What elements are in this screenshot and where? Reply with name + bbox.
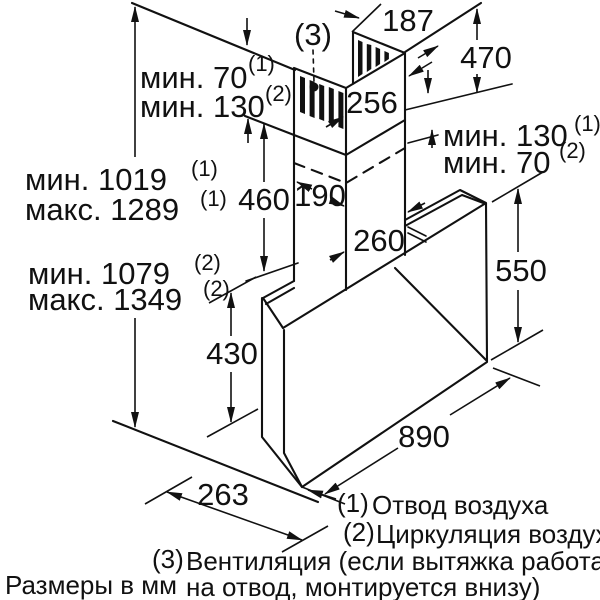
duct-bracket-detail	[408, 227, 426, 242]
annotation-overall-heights: мин. 1019 (1) макс. 1289 (1) мин. 1079 (…	[25, 156, 230, 317]
vent-slat	[358, 40, 363, 77]
vent-slat	[338, 91, 343, 129]
vent-slat	[376, 47, 381, 67]
annotation-text: мин. 70	[443, 145, 550, 180]
dim-label-460: 460	[238, 182, 290, 217]
dimension-arrow	[418, 46, 438, 58]
dimension-right-clearance	[428, 70, 432, 148]
right-reference-line-upper	[405, 84, 512, 110]
diagram-canvas: 187 470 256 190 260 460 550 430 263 890 …	[0, 0, 600, 600]
annotation-sup: (1)	[574, 111, 600, 136]
annotation-ceiling-clearance: мин. 70 (1) мин. 130 (2)	[140, 51, 292, 124]
installation-diagram: 187 470 256 190 260 460 550 430 263 890 …	[0, 0, 600, 600]
dim-label-187: 187	[382, 3, 434, 38]
dimension-arrow	[335, 11, 359, 18]
callout-3-leader	[310, 50, 319, 92]
annotation-sup: (2)	[559, 138, 586, 163]
vent-slat	[384, 51, 389, 62]
units-note: Размеры в мм	[5, 570, 177, 600]
annotation-sup: (2)	[203, 276, 230, 301]
callout-3-label: (3)	[294, 17, 332, 52]
dim-label-430: 430	[206, 336, 258, 371]
dim-label-470: 470	[460, 40, 512, 75]
dim-label-256: 256	[346, 85, 398, 120]
right-reference-line-lower	[408, 135, 438, 143]
annotation-sup: (1)	[200, 186, 227, 211]
dim-label-263: 263	[197, 477, 249, 512]
legend: (1) Отвод воздуха (2) Циркуляция воздуха…	[5, 488, 600, 600]
dim-label-190: 190	[294, 178, 346, 213]
dimension-arrow	[330, 252, 344, 260]
dim-label-890: 890	[398, 419, 450, 454]
annotation-text: мин. 130	[140, 89, 265, 124]
annotation-text: макс. 1289	[25, 192, 179, 227]
annotation-right-clearance: мин. 130 (1) мин. 70 (2)	[443, 111, 600, 180]
callout-3-dot	[310, 83, 319, 92]
callout-3-dashed-line	[313, 50, 314, 82]
hood-inner-edge	[395, 268, 486, 360]
legend-leader-arrow	[308, 490, 336, 499]
legend-item-1-text: Отвод воздуха	[372, 490, 549, 520]
vent-slat	[329, 87, 334, 125]
legend-item-3-text-line2: на отвод, монтируется внизу)	[186, 572, 540, 600]
annotation-text: макс. 1349	[28, 282, 182, 317]
dim-label-550: 550	[495, 253, 547, 288]
vent-slat	[367, 44, 372, 72]
chimney-joint-line	[245, 116, 405, 155]
annotation-sup: (2)	[194, 250, 221, 275]
legend-item-1-num: (1)	[337, 488, 369, 518]
annotation-sup: (1)	[191, 156, 218, 181]
legend-item-2-num: (2)	[343, 517, 375, 547]
annotation-sup: (1)	[248, 51, 275, 76]
annotation-sup: (2)	[265, 81, 292, 106]
dimension-line	[450, 378, 510, 415]
dim-label-260: 260	[353, 223, 405, 258]
legend-item-2-text: Циркуляция воздуха	[376, 519, 600, 549]
vent-slat	[300, 76, 305, 114]
vent-slat	[319, 84, 324, 121]
